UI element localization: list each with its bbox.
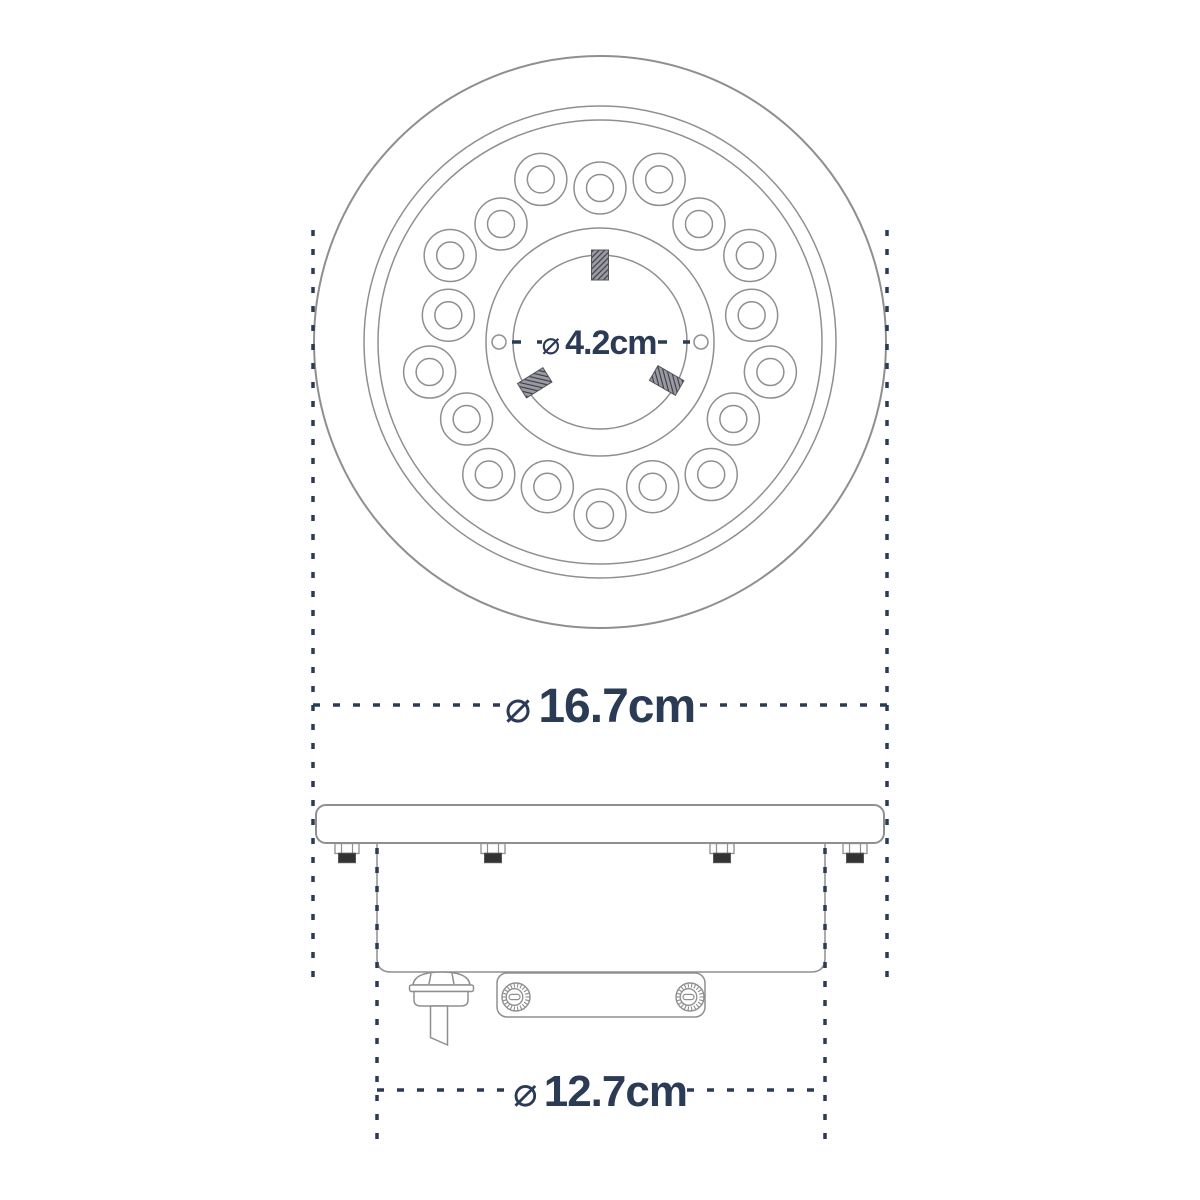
top-view: ⌀4.2cm	[314, 56, 886, 628]
knurl-tick	[691, 984, 692, 988]
led-hole-inner	[639, 473, 666, 500]
screw-tip	[339, 853, 356, 863]
center-hole-dim-label: ⌀4.2cm	[541, 324, 656, 362]
led-hole-inner	[736, 242, 763, 269]
screw-tip	[714, 853, 731, 863]
led-hole-inner	[416, 359, 443, 386]
led-hole-outer	[673, 198, 725, 250]
gland-cap	[413, 972, 470, 985]
flange-screw	[843, 844, 867, 863]
knurl-tick	[517, 984, 518, 988]
body-profile	[377, 843, 825, 972]
flange-screw	[335, 844, 359, 863]
flange-screw	[710, 844, 734, 863]
led-hole-inner	[534, 473, 561, 500]
led-hole-outer	[724, 230, 776, 282]
hub-screw-hole-left	[492, 335, 506, 349]
knurl-tick	[688, 1006, 689, 1010]
screw-tip	[847, 853, 864, 863]
hub-screw-hole-right	[694, 335, 708, 349]
bracket-thumb-screw	[502, 983, 530, 1011]
thread-stud	[649, 366, 683, 396]
side-view	[316, 805, 884, 1045]
flange-screw	[481, 844, 505, 863]
led-hole-outer	[404, 346, 456, 398]
led-hole-outer	[574, 162, 626, 214]
led-hole-inner	[527, 166, 554, 193]
led-hole-inner	[757, 359, 784, 386]
led-hole-outer	[463, 449, 515, 501]
led-hole-inner	[437, 242, 464, 269]
screw-slot	[683, 994, 694, 999]
led-hole-outer	[441, 393, 493, 445]
led-hole-outer	[685, 449, 737, 501]
knurl-tick	[691, 1006, 692, 1010]
led-hole-outer	[707, 393, 759, 445]
screw-head	[335, 844, 359, 854]
screw-head	[843, 844, 867, 854]
led-hole-inner	[698, 461, 725, 488]
flange-screws	[335, 844, 867, 863]
screw-slot	[509, 994, 520, 999]
led-hole-outer	[422, 289, 474, 341]
led-hole-outer	[424, 230, 476, 282]
knurl-tick	[514, 984, 515, 988]
led-hole-outer	[521, 461, 573, 513]
led-hole-inner	[720, 406, 747, 433]
gland-ring	[410, 985, 474, 992]
led-hole-outer	[515, 153, 567, 205]
thread-stud	[592, 250, 609, 280]
technical-drawing: ⌀4.2cm ⌀16.7cm	[0, 0, 1200, 1200]
led-hole-inner	[435, 302, 462, 329]
led-hole-inner	[646, 166, 673, 193]
cable-gland	[410, 972, 474, 1045]
led-hole-outer	[574, 489, 626, 541]
knurl-tick	[514, 1006, 515, 1010]
cable	[431, 1006, 448, 1045]
led-hole-inner	[587, 502, 614, 529]
led-hole-inner	[587, 175, 614, 202]
led-hole-inner	[453, 406, 480, 433]
led-hole-inner	[488, 211, 515, 238]
led-hole-outer	[475, 198, 527, 250]
led-hole-inner	[738, 302, 765, 329]
led-hole-outer	[744, 346, 796, 398]
led-hole-outer	[627, 461, 679, 513]
led-hole-outer	[726, 289, 778, 341]
screw-tip	[485, 853, 502, 863]
knurl-tick	[688, 984, 689, 988]
body-diameter-label: ⌀12.7cm	[513, 1067, 687, 1116]
mounting-bracket	[497, 973, 705, 1017]
screw-head	[481, 844, 505, 854]
center-hole-dimension: ⌀4.2cm	[512, 324, 690, 362]
flange-profile	[316, 805, 884, 843]
gland-nut	[414, 992, 468, 1007]
led-hole-inner	[685, 211, 712, 238]
bracket-thumb-screw	[676, 983, 704, 1011]
thread-stud	[517, 368, 551, 398]
knurl-tick	[517, 1006, 518, 1010]
screw-head	[710, 844, 734, 854]
led-hole-outer	[633, 153, 685, 205]
outer-diameter-label: ⌀16.7cm	[505, 680, 695, 733]
led-hole-inner	[475, 461, 502, 488]
